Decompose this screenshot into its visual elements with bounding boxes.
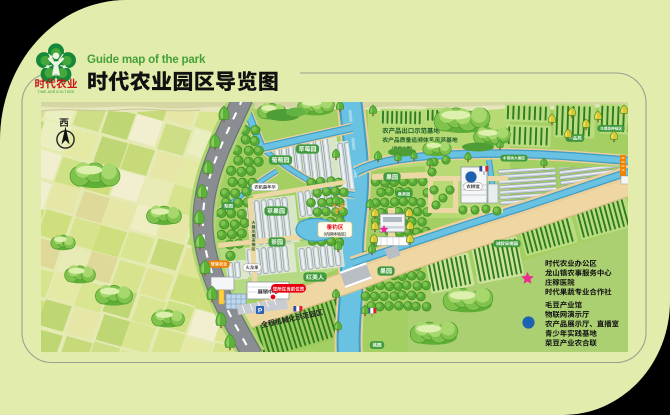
svg-text:TIME AGRICULTURE: TIME AGRICULTURE [37, 90, 74, 94]
svg-text:P: P [258, 308, 263, 315]
svg-text:Guide map of the park: Guide map of the park [87, 53, 206, 66]
